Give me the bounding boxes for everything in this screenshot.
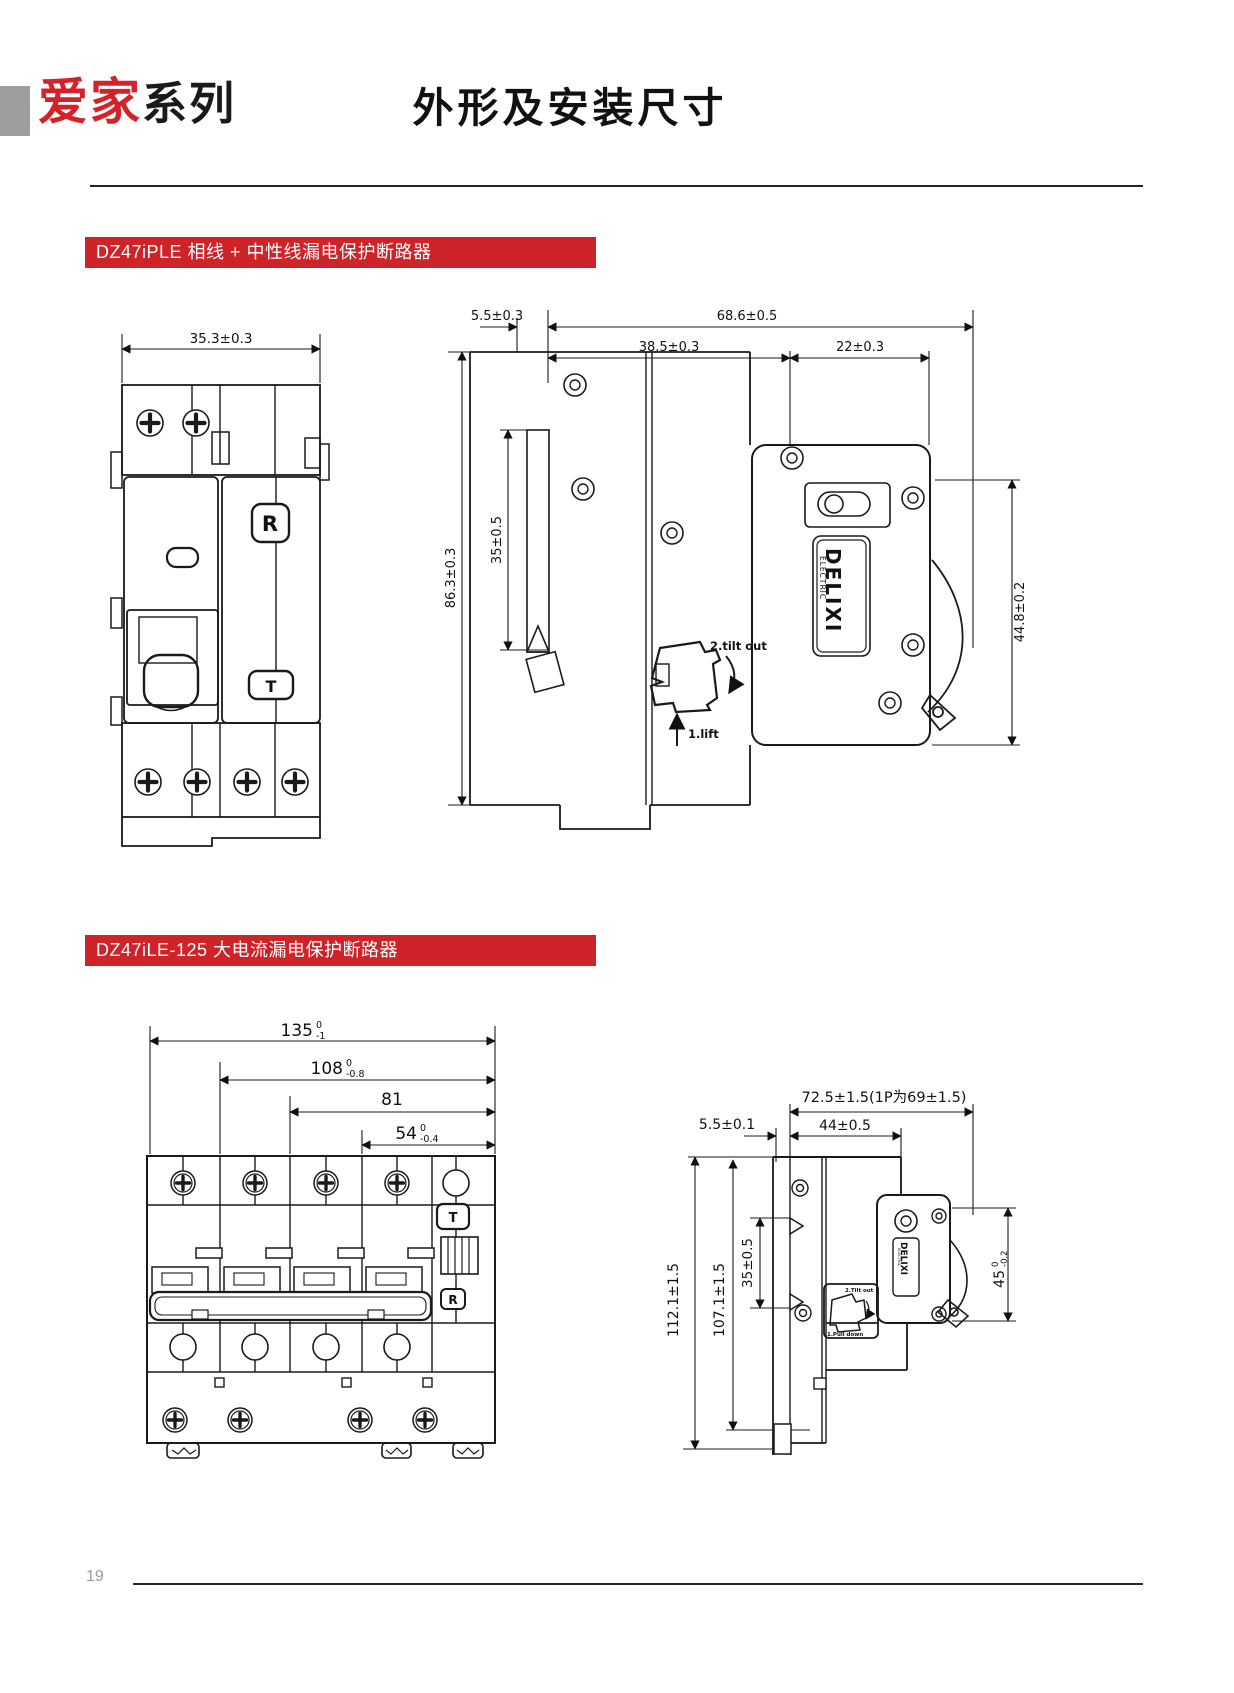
pole-mechanisms bbox=[152, 1248, 434, 1293]
dim-sv1-out: 22±0.3 bbox=[836, 340, 884, 355]
indicator-window bbox=[167, 548, 198, 567]
phillips-screw bbox=[243, 1171, 267, 1195]
dim-sv2-rail: 35±0.5 bbox=[740, 1238, 756, 1288]
rivet bbox=[902, 487, 924, 509]
reset-button-label: R bbox=[448, 1293, 457, 1307]
rivet bbox=[879, 692, 901, 714]
step2-label: 2.Tilt out bbox=[845, 1288, 874, 1294]
dim-fv2-w2: 108 bbox=[311, 1059, 343, 1079]
phillips-screw bbox=[183, 410, 209, 436]
rivet bbox=[661, 522, 683, 544]
phillips-screw bbox=[348, 1408, 372, 1432]
phillips-screw bbox=[385, 1171, 409, 1195]
toggle-side bbox=[805, 483, 890, 527]
phillips-screw bbox=[137, 410, 163, 436]
step2-label: 2.tilt out bbox=[710, 639, 767, 653]
dim-fv2-w4-hi: 0 bbox=[420, 1123, 426, 1134]
din-clip bbox=[922, 560, 963, 730]
rivet bbox=[902, 634, 924, 656]
rivets bbox=[792, 1180, 946, 1321]
footer-divider bbox=[133, 1583, 1143, 1585]
dim-sv2-body-lo: -0.2 bbox=[1000, 1250, 1010, 1267]
dim-fv2-w2-hi: 0 bbox=[346, 1058, 352, 1069]
dim-sv2-h1: 112.1±1.5 bbox=[666, 1263, 682, 1337]
phillips-screw bbox=[135, 769, 161, 795]
striped-window bbox=[441, 1237, 478, 1274]
test-button-label: T bbox=[266, 677, 277, 696]
page-number: 19 bbox=[86, 1568, 104, 1586]
dz47ile125-side-view: 72.5±1.5(1P为69±1.5) 5.5±0.1 44±0.5 112.1… bbox=[666, 1089, 1016, 1455]
dim-sv1-rail: 35±0.5 bbox=[490, 516, 505, 564]
phillips-screw bbox=[413, 1408, 437, 1432]
rivet bbox=[564, 374, 586, 396]
dz47iple-front-view: 35.3±0.3 bbox=[111, 331, 329, 846]
step1-label: 1.lift bbox=[688, 727, 719, 741]
phillips-screw bbox=[234, 769, 260, 795]
dim-fv2-w1: 135 bbox=[281, 1021, 313, 1041]
phillips-screw bbox=[163, 1408, 187, 1432]
rivet bbox=[572, 478, 594, 500]
phillips-screw bbox=[314, 1171, 338, 1195]
toggle-side bbox=[895, 1210, 917, 1232]
din-rail-cross-section bbox=[526, 430, 564, 692]
dim-sv2-body: 45 bbox=[992, 1270, 1008, 1288]
step1-label: 1.Pull down bbox=[827, 1332, 863, 1338]
rivet bbox=[781, 447, 803, 469]
technical-drawings: 35.3±0.3 bbox=[0, 0, 1234, 1693]
delixi-electric-text: ELECTRIC bbox=[897, 1248, 902, 1267]
dim-fv2-w1-lo: -1 bbox=[316, 1031, 325, 1042]
rail-hooks bbox=[774, 1218, 803, 1454]
toggle-handle bbox=[127, 610, 218, 711]
dim-sv2-total: 72.5±1.5(1P为69±1.5) bbox=[802, 1089, 967, 1106]
dz47ile125-front-view: 135 0 -1 108 0 -0.8 81 54 0 -0.4 bbox=[147, 1020, 495, 1458]
toggle-bar bbox=[150, 1292, 431, 1320]
reset-button-label: R bbox=[262, 512, 278, 536]
dim-fv1-width: 35.3±0.3 bbox=[190, 331, 253, 347]
terminal-tabs bbox=[167, 1443, 483, 1458]
dim-fv2-w4-lo: -0.4 bbox=[420, 1134, 439, 1145]
dim-sv2-front: 44±0.5 bbox=[819, 1118, 871, 1134]
phillips-screw bbox=[228, 1408, 252, 1432]
dim-fv2-w3: 81 bbox=[381, 1090, 403, 1110]
catalog-page: 爱家 系列 外形及安装尺寸 DZ47iPLE 相线 + 中性线漏电保护断路器 D… bbox=[0, 0, 1234, 1693]
phillips-screw bbox=[184, 769, 210, 795]
phillips-screw bbox=[282, 769, 308, 795]
dim-fv2-w4: 54 bbox=[395, 1124, 417, 1144]
dim-sv1-body: 44.8±0.2 bbox=[1013, 582, 1028, 643]
dim-sv2-gap: 5.5±0.1 bbox=[699, 1117, 755, 1133]
dim-fv2-w2-lo: -0.8 bbox=[346, 1069, 365, 1080]
dim-fv2-w1-hi: 0 bbox=[316, 1020, 322, 1031]
dim-sv1-total: 68.6±0.5 bbox=[717, 309, 778, 324]
dim-sv1-gap: 5.5±0.3 bbox=[471, 309, 523, 324]
dim-sv1-height: 86.3±0.3 bbox=[444, 548, 459, 609]
dim-sv2-body-group: 45 0 -0.2 bbox=[991, 1250, 1010, 1287]
dz47iple-side-view: 5.5±0.3 68.6±0.5 38.5±0.3 22±0.3 86.3±0.… bbox=[444, 309, 1028, 829]
terminal-hole bbox=[443, 1170, 469, 1196]
dim-sv2-h2: 107.1±1.5 bbox=[712, 1263, 728, 1337]
phillips-screw bbox=[171, 1171, 195, 1195]
test-button-label: T bbox=[449, 1211, 458, 1226]
delixi-electric-text: ELECTRIC bbox=[818, 556, 827, 600]
